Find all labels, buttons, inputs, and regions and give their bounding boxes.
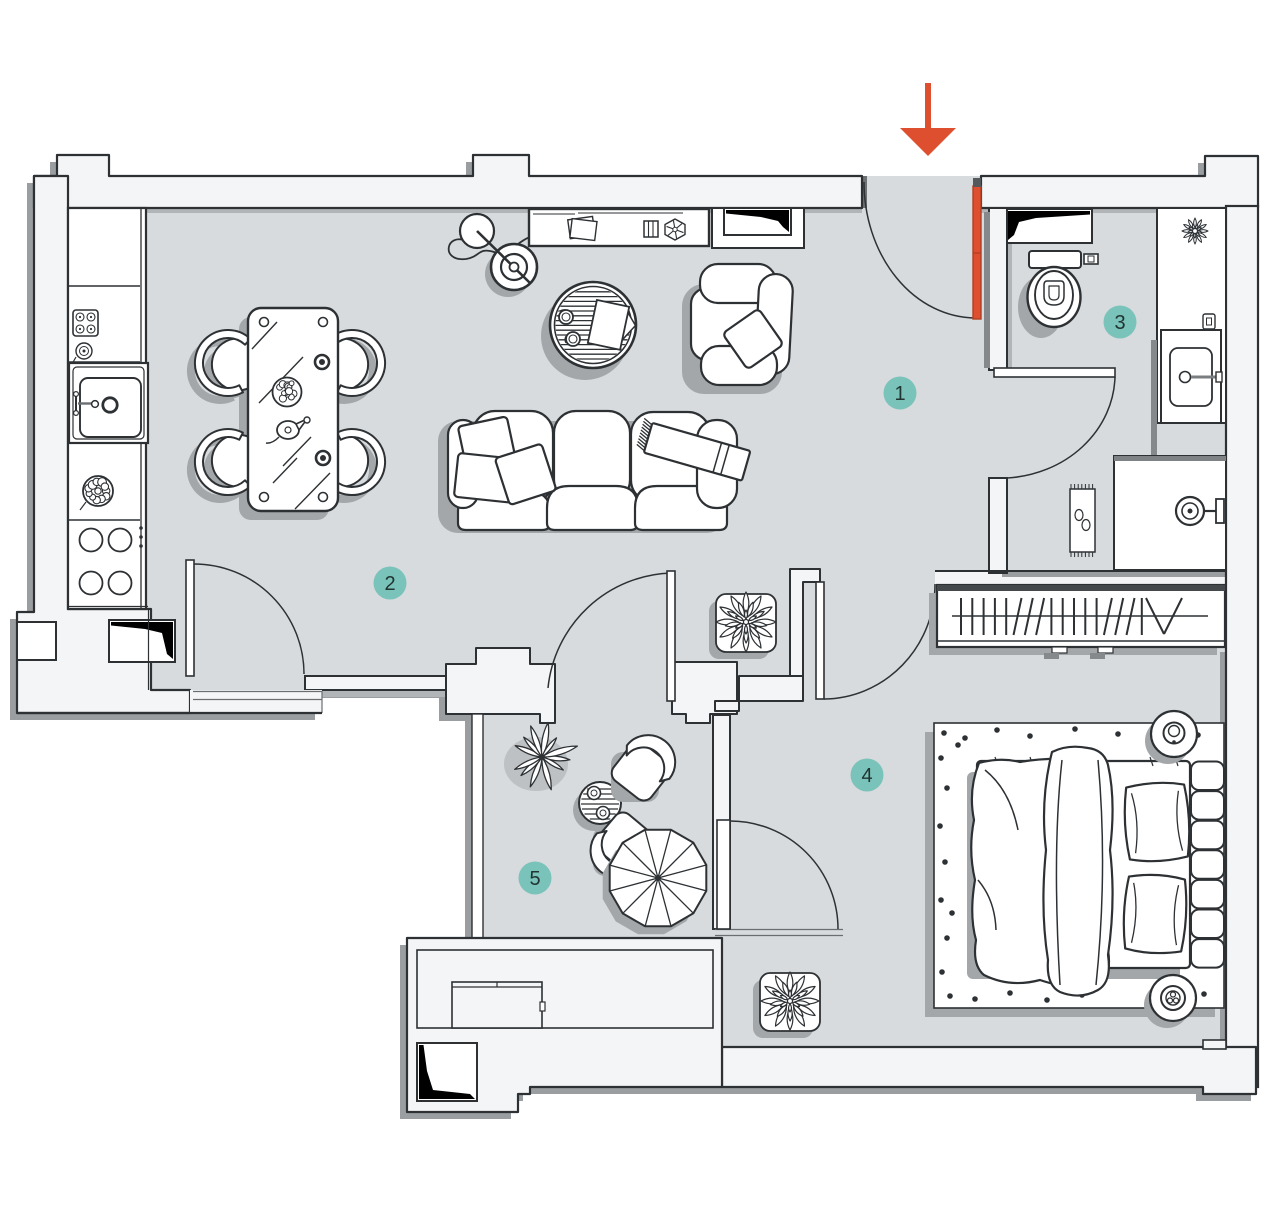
svg-text:2: 2 <box>384 573 395 595</box>
svg-text:1: 1 <box>894 383 905 405</box>
svg-text:5: 5 <box>529 868 540 890</box>
svg-text:4: 4 <box>861 765 872 787</box>
svg-text:3: 3 <box>1114 312 1125 334</box>
